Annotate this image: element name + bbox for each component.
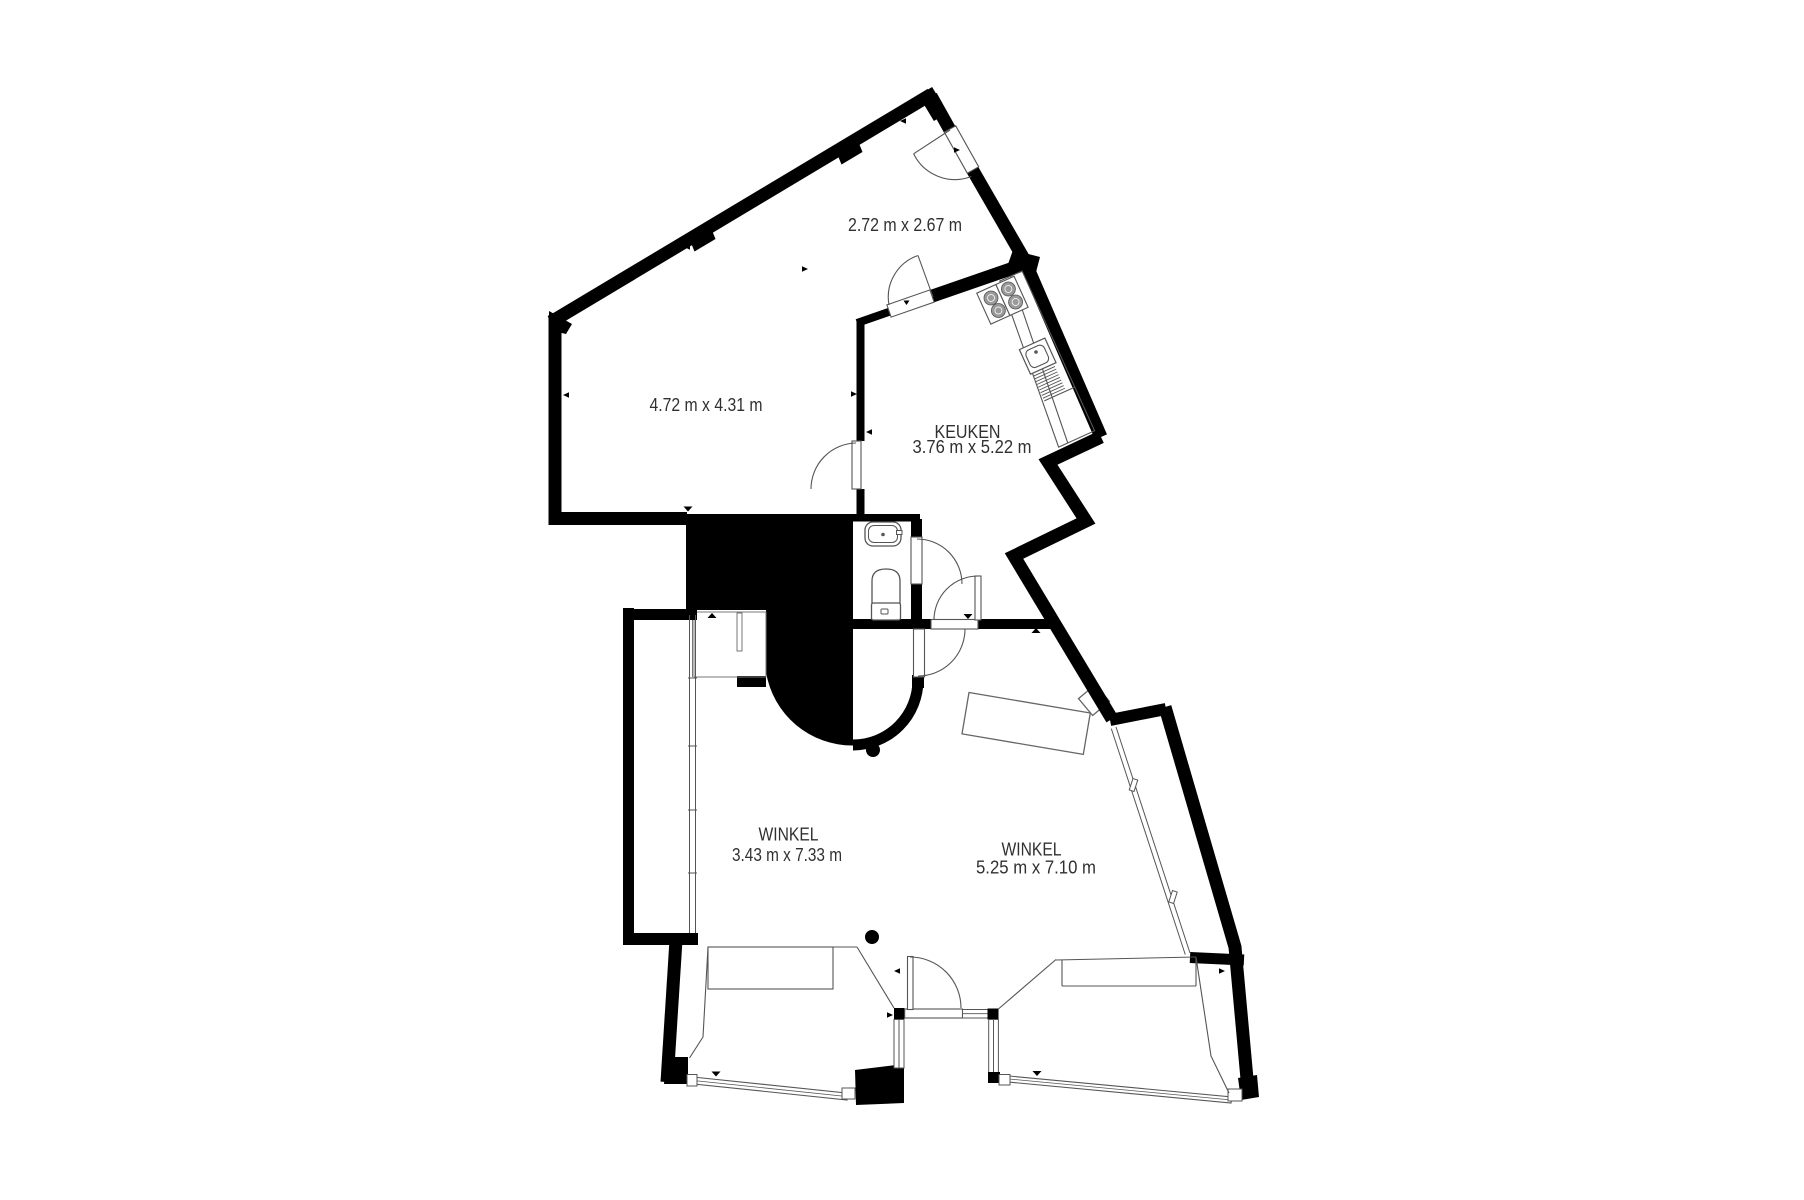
svg-text:3.43 m x 7.33 m: 3.43 m x 7.33 m	[732, 845, 842, 865]
svg-text:WINKEL: WINKEL	[1002, 840, 1062, 860]
svg-text:3.76 m x 5.22 m: 3.76 m x 5.22 m	[913, 437, 1032, 457]
svg-text:4.72 m x 4.31 m: 4.72 m x 4.31 m	[650, 395, 763, 415]
svg-text:2.72 m x 2.67 m: 2.72 m x 2.67 m	[848, 215, 962, 235]
svg-text:5.25 m x 7.10 m: 5.25 m x 7.10 m	[976, 858, 1096, 878]
svg-text:WINKEL: WINKEL	[759, 825, 819, 845]
